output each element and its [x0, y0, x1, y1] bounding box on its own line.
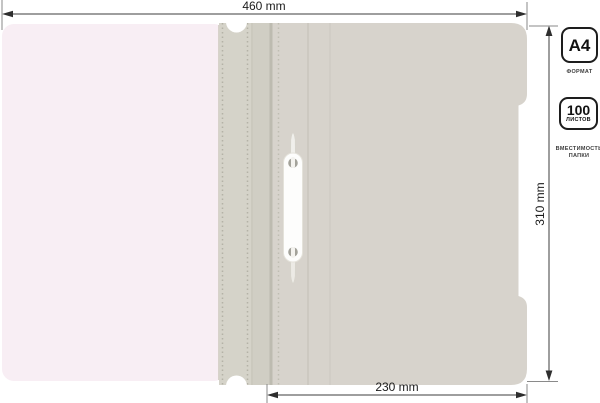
dim-height-arrow-top — [546, 26, 553, 37]
dim-cover-arrow-right — [516, 392, 527, 399]
dim-width-arrow-left — [2, 11, 13, 18]
capacity-badge: 100 ЛИСТОВ — [559, 97, 598, 130]
spine-notch-bottom — [226, 376, 247, 397]
format-badge: A4 — [561, 27, 598, 63]
folder-drawing — [0, 0, 600, 403]
fastener-prong-bottom-base — [291, 247, 295, 258]
format-badge-value: A4 — [569, 37, 591, 54]
spine-notch-top — [226, 12, 247, 33]
folder — [2, 12, 527, 397]
folder-back-page — [2, 24, 226, 381]
dim-height-arrow-bottom — [546, 371, 553, 382]
capacity-caption-line1: ВМЕСТИМОСТЬ — [549, 146, 600, 153]
dim-width-arrow-right — [516, 11, 527, 18]
dimension-cover-width-label: 230 mm — [347, 381, 447, 395]
capacity-badge-caption: ВМЕСТИМОСТЬ ПАПКИ — [549, 146, 600, 160]
capacity-badge-value: 100 — [567, 104, 590, 117]
fastener-strip — [284, 153, 303, 262]
product-illustration: 460 mm 310 mm 230 mm A4 ФОРМАТ 100 ЛИСТО… — [0, 0, 600, 403]
dim-cover-arrow-left — [267, 392, 278, 399]
dimension-height-label: 310 mm — [534, 176, 548, 232]
capacity-badge-unit: ЛИСТОВ — [566, 117, 591, 124]
capacity-caption-line2: ПАПКИ — [549, 153, 600, 160]
folder-spine-inner — [251, 23, 271, 385]
format-badge-caption: ФОРМАТ — [552, 69, 600, 76]
fastener-prong-top-base — [291, 157, 295, 168]
dimension-width-label: 460 mm — [214, 0, 314, 14]
folder-front-cover — [272, 23, 527, 385]
fold-line — [270, 23, 273, 385]
